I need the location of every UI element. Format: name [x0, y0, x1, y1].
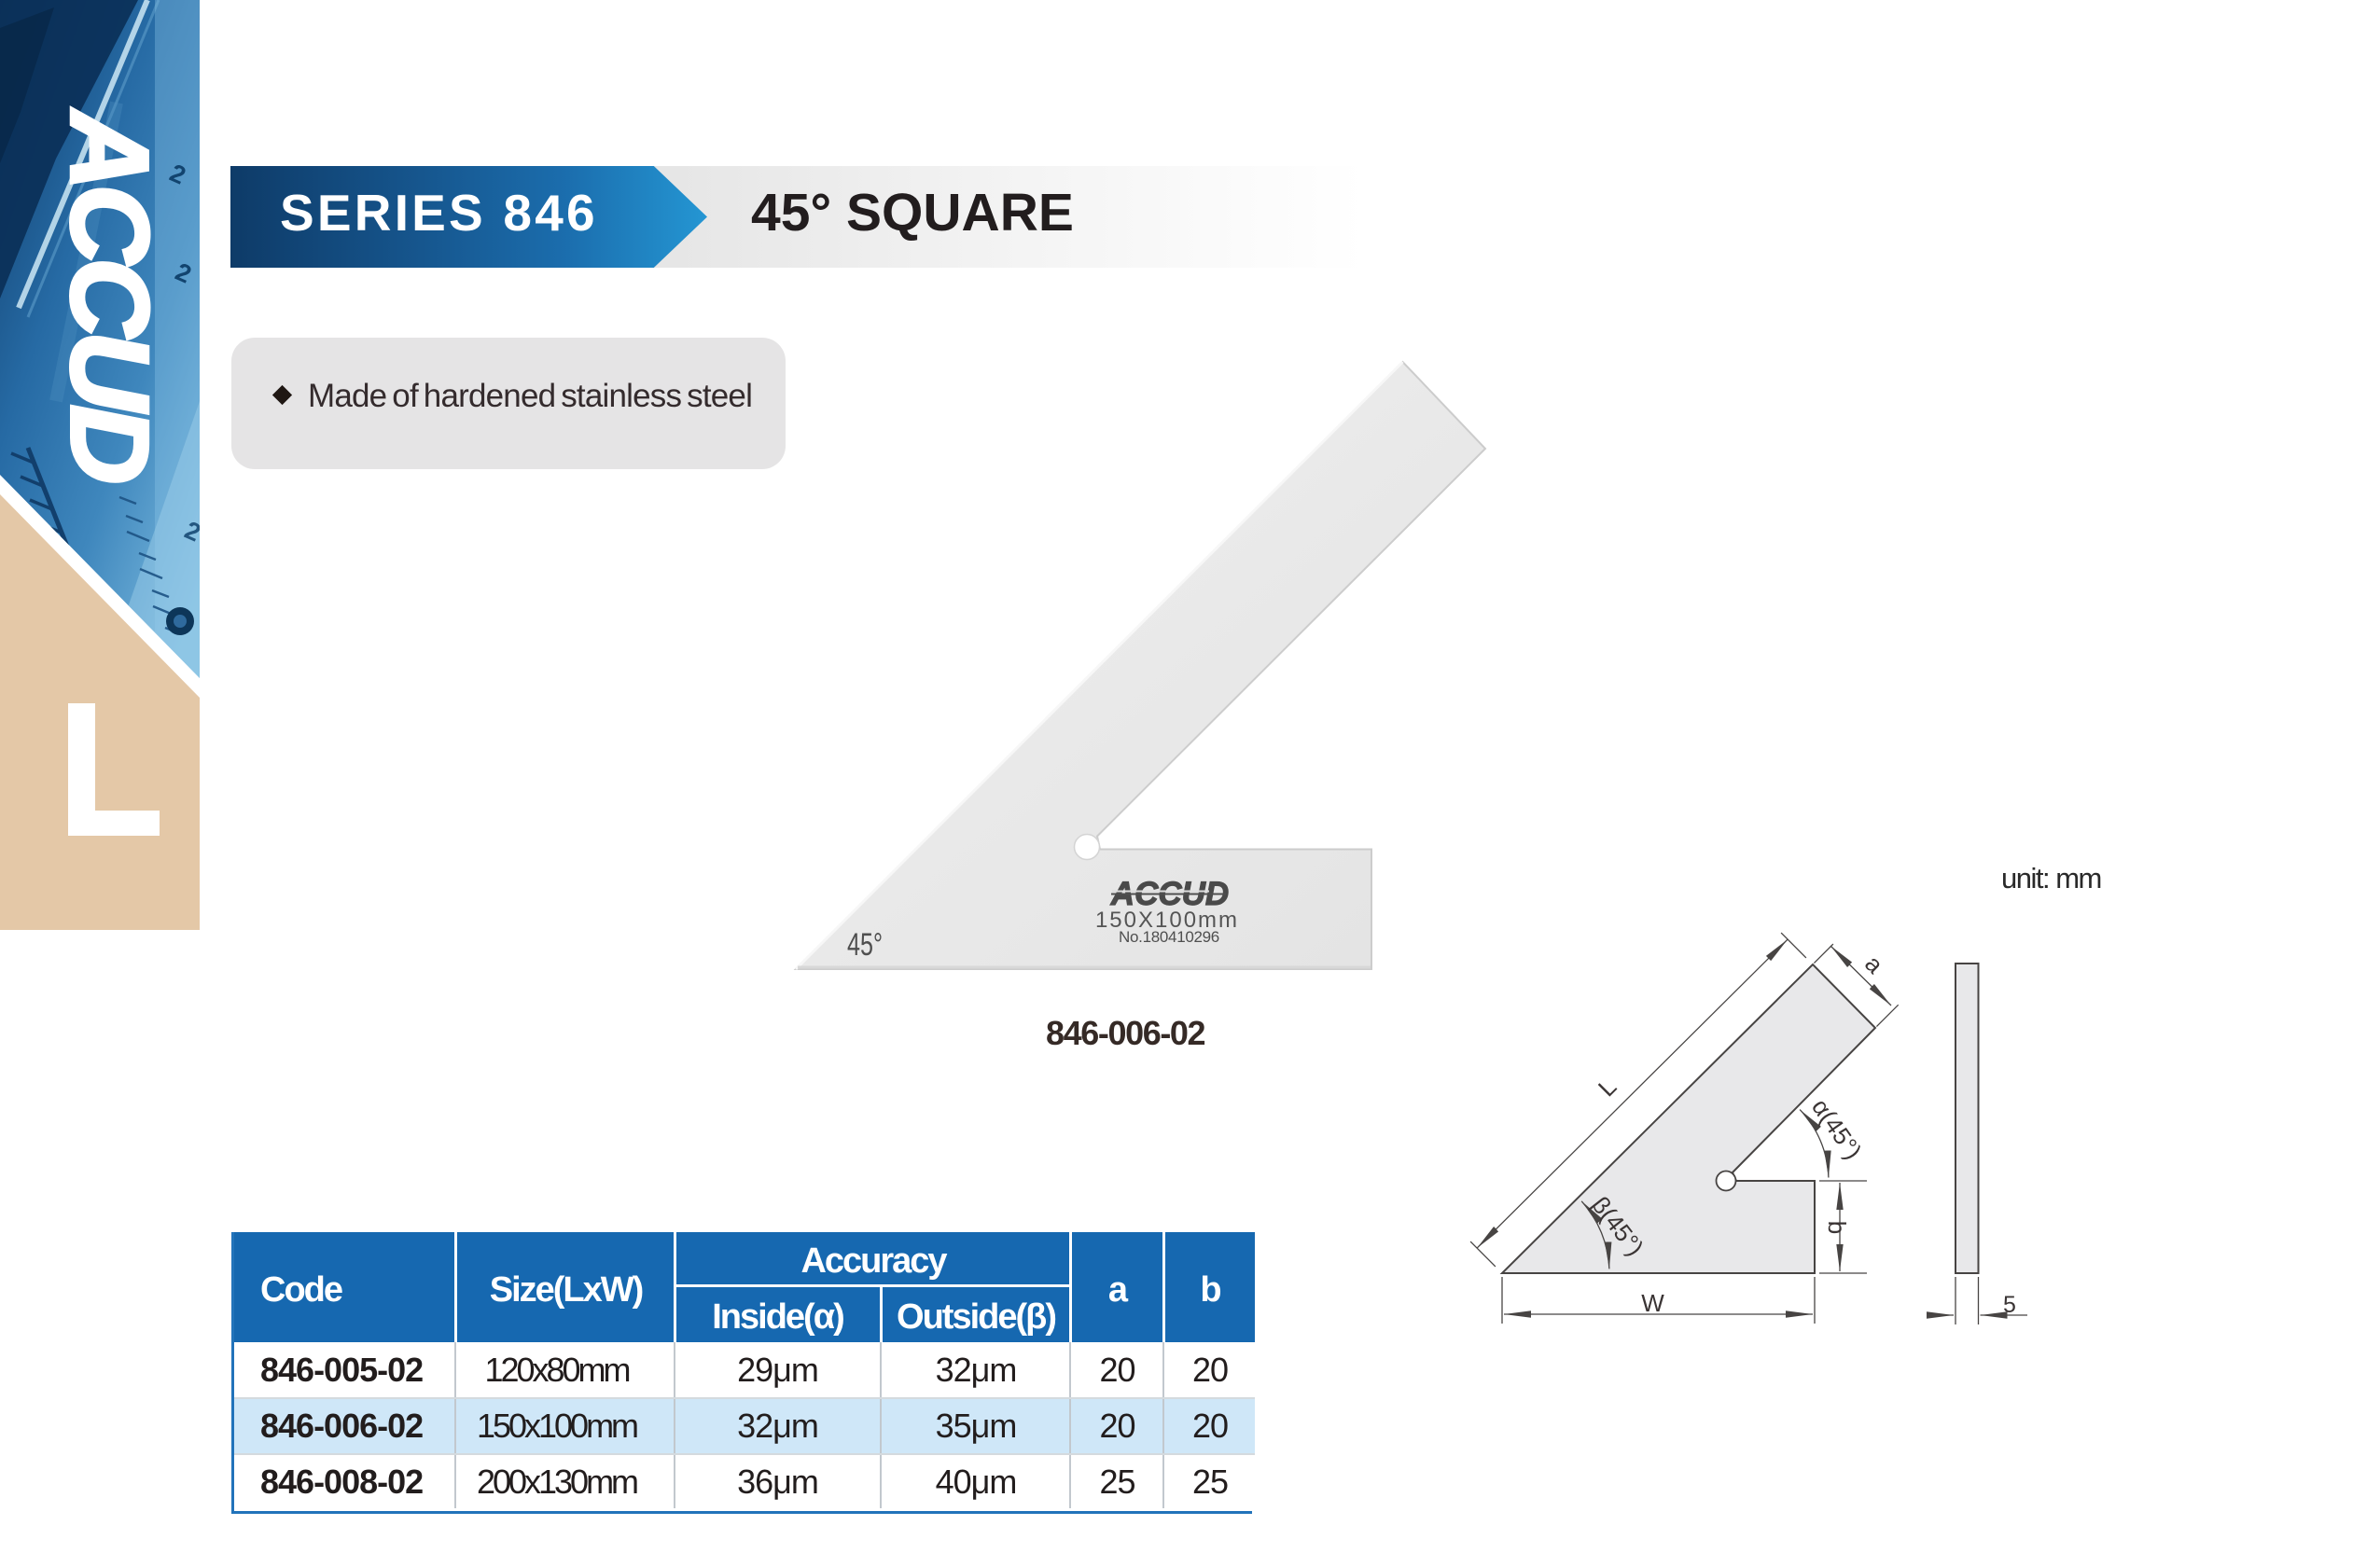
svg-text:No.180410296: No.180410296 [1119, 928, 1219, 946]
svg-text:b: b [1823, 1221, 1851, 1234]
svg-text:W: W [1641, 1289, 1664, 1317]
svg-text:unit: mm: unit: mm [2001, 862, 2101, 894]
svg-text:α(45°): α(45°) [1806, 1093, 1868, 1164]
svg-text:L: L [1593, 1073, 1621, 1102]
svg-text:a: a [1859, 950, 1889, 979]
svg-text:45°: 45° [847, 927, 883, 963]
svg-text:5: 5 [2003, 1292, 2016, 1318]
